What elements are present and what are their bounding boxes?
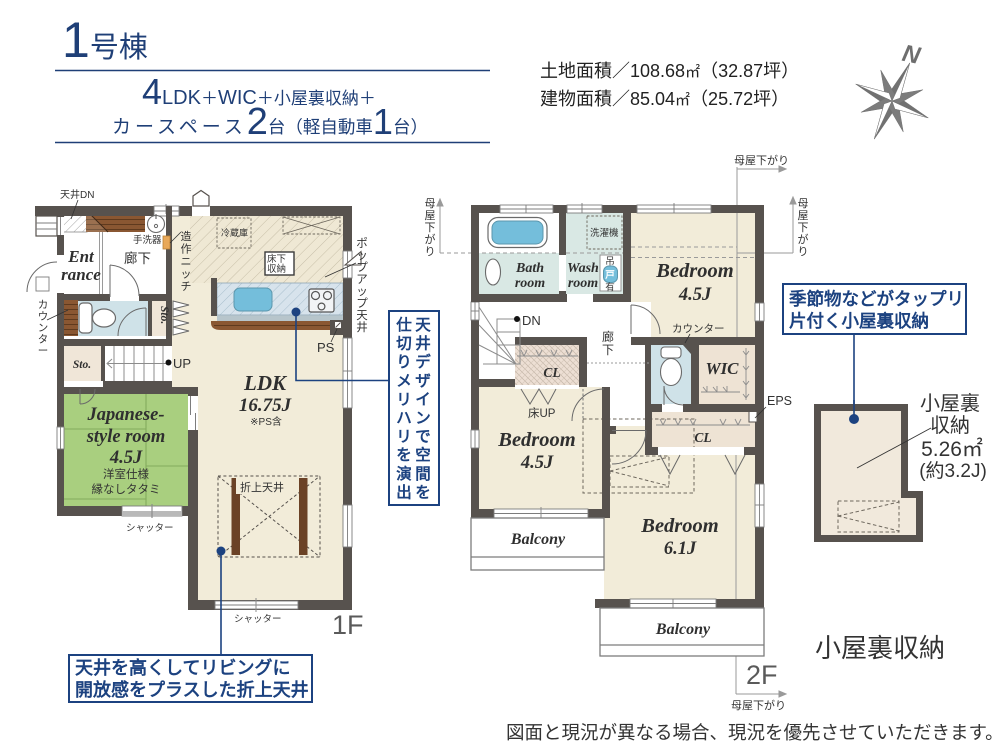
svg-text:Balcony: Balcony bbox=[510, 531, 566, 548]
svg-text:Balcony: Balcony bbox=[655, 621, 711, 638]
svg-text:style room: style room bbox=[86, 427, 166, 447]
svg-text:2F: 2F bbox=[746, 660, 778, 690]
svg-text:床UP: 床UP bbox=[528, 406, 556, 420]
svg-text:収納: 収納 bbox=[930, 414, 970, 437]
svg-text:6.1J: 6.1J bbox=[664, 539, 697, 559]
svg-text:縁なしタタミ: 縁なしタタミ bbox=[92, 482, 161, 496]
svg-text:DN: DN bbox=[522, 313, 541, 328]
svg-text:Bath: Bath bbox=[515, 261, 544, 276]
svg-text:片付く小屋裏収納: 片付く小屋裏収納 bbox=[789, 311, 929, 331]
svg-text:CL: CL bbox=[694, 430, 711, 445]
svg-text:図面と現況が異なる場合、現況を優先させていただきます。: 図面と現況が異なる場合、現況を優先させていただきます。 bbox=[506, 722, 1000, 743]
svg-text:4.5J: 4.5J bbox=[109, 448, 143, 468]
svg-text:CL: CL bbox=[543, 365, 560, 380]
svg-text:(約3.2J): (約3.2J) bbox=[919, 460, 987, 482]
svg-text:Wash: Wash bbox=[567, 261, 599, 276]
svg-text:4.5J: 4.5J bbox=[678, 285, 712, 305]
svg-text:洗濯機: 洗濯機 bbox=[590, 227, 619, 239]
svg-text:UP: UP bbox=[173, 356, 191, 371]
svg-text:天井DN: 天井DN bbox=[60, 188, 94, 201]
svg-text:4.5J: 4.5J bbox=[520, 453, 554, 473]
svg-text:Bedroom: Bedroom bbox=[655, 260, 733, 282]
svg-text:戸: 戸 bbox=[605, 270, 615, 281]
svg-text:カウンター: カウンター bbox=[38, 299, 49, 357]
svg-text:5.26㎡: 5.26㎡ bbox=[921, 437, 983, 461]
svg-text:room: room bbox=[515, 276, 545, 291]
svg-text:LDK: LDK bbox=[243, 371, 288, 395]
svg-text:折上天井: 折上天井 bbox=[240, 480, 284, 494]
svg-text:収納: 収納 bbox=[267, 263, 286, 275]
svg-text:廊下: 廊下 bbox=[124, 250, 151, 266]
svg-text:季節物などがタップリ: 季節物などがタップリ bbox=[789, 289, 964, 309]
svg-text:廊下: 廊下 bbox=[602, 329, 614, 357]
svg-text:小屋裏収納: 小屋裏収納 bbox=[815, 633, 945, 663]
svg-text:カウンター: カウンター bbox=[672, 323, 725, 335]
svg-text:Ent: Ent bbox=[67, 247, 95, 266]
svg-text:※PS含: ※PS含 bbox=[250, 415, 282, 428]
svg-text:母屋下がり: 母屋下がり bbox=[798, 197, 809, 258]
svg-text:仕切りメリハリを演出: 仕切りメリハリを演出 bbox=[395, 315, 412, 501]
svg-text:有: 有 bbox=[605, 282, 615, 294]
svg-text:WIC: WIC bbox=[705, 359, 739, 378]
svg-text:Sto.: Sto. bbox=[73, 359, 91, 371]
svg-text:洋室仕様: 洋室仕様 bbox=[103, 467, 149, 481]
svg-text:冷蔵庫: 冷蔵庫 bbox=[221, 227, 248, 238]
svg-text:小屋裏: 小屋裏 bbox=[920, 392, 980, 415]
svg-text:手洗器: 手洗器 bbox=[133, 234, 162, 246]
svg-text:Bedroom: Bedroom bbox=[640, 515, 718, 537]
svg-text:シャッター: シャッター bbox=[126, 523, 174, 534]
svg-text:room: room bbox=[568, 276, 598, 291]
svg-text:吊: 吊 bbox=[605, 257, 615, 268]
svg-text:PS: PS bbox=[317, 340, 335, 355]
svg-text:EPS: EPS bbox=[767, 394, 792, 408]
svg-text:シャッター: シャッター bbox=[234, 614, 282, 625]
svg-text:母屋下がり: 母屋下がり bbox=[731, 698, 786, 712]
svg-text:Japanese-: Japanese- bbox=[86, 405, 164, 425]
svg-text:天井を高くしてリビングに: 天井を高くしてリビングに bbox=[75, 657, 290, 678]
svg-text:16.75J: 16.75J bbox=[239, 395, 292, 416]
svg-text:母屋下がり: 母屋下がり bbox=[734, 153, 789, 167]
svg-text:rance: rance bbox=[61, 265, 101, 284]
svg-text:開放感をプラスした折上天井: 開放感をプラスした折上天井 bbox=[75, 679, 309, 700]
svg-text:ポップアップ天井: ポップアップ天井 bbox=[356, 237, 368, 334]
svg-text:天井デザインで空間を: 天井デザインで空間を bbox=[415, 317, 431, 501]
svg-text:母屋下がり: 母屋下がり bbox=[425, 197, 436, 258]
svg-text:Sto.: Sto. bbox=[158, 306, 170, 324]
svg-text:Bedroom: Bedroom bbox=[497, 429, 575, 451]
svg-text:建物面積／85.04㎡（25.72坪）: 建物面積／85.04㎡（25.72坪） bbox=[540, 89, 789, 109]
svg-text:1F: 1F bbox=[332, 610, 364, 640]
svg-text:土地面積／108.68㎡（32.87坪）: 土地面積／108.68㎡（32.87坪） bbox=[540, 61, 799, 81]
svg-text:造作ニッチ: 造作ニッチ bbox=[181, 229, 192, 293]
